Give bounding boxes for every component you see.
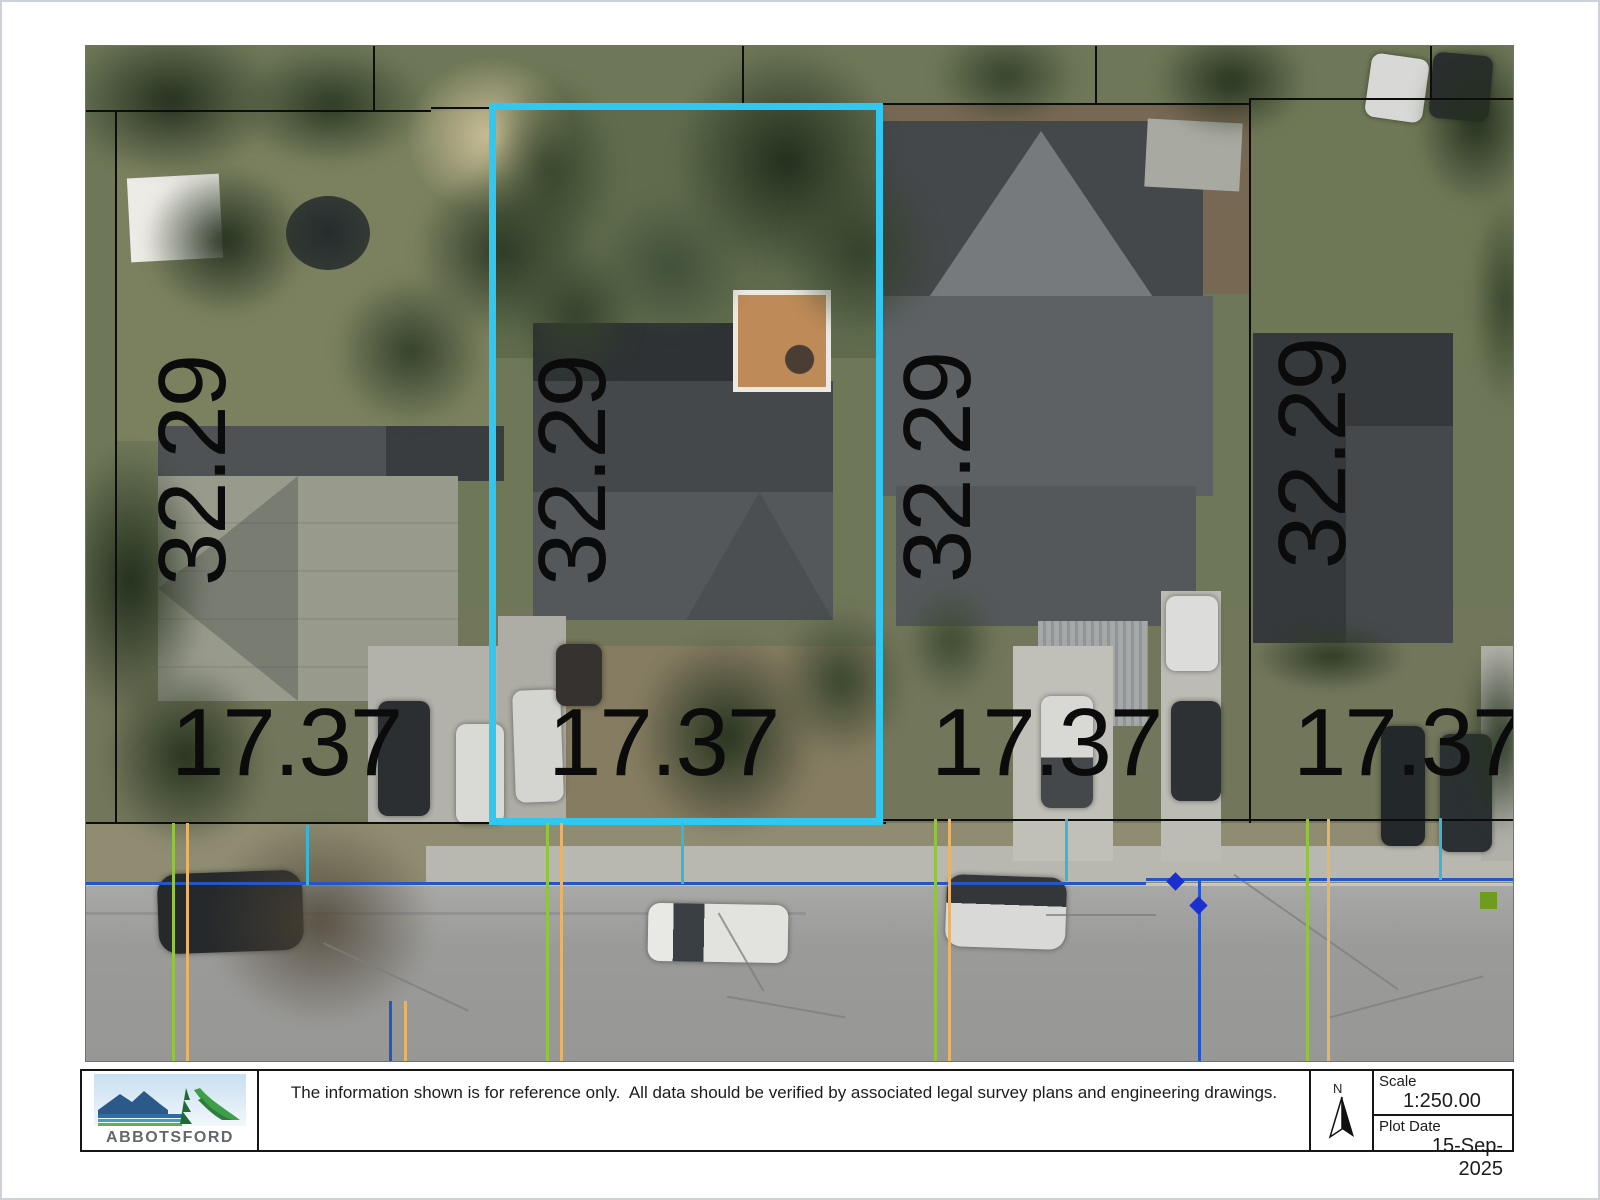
svg-text:N: N [1333, 1081, 1342, 1096]
utility-line-green [934, 819, 937, 1061]
dimension-label-depth-3: 32.29 [883, 308, 993, 628]
car [1166, 596, 1218, 671]
parcel-boundary [1250, 98, 1513, 100]
utility-line-orange [948, 819, 951, 1061]
utility-line-orange [404, 1001, 407, 1061]
utility-marker-square [1480, 892, 1497, 909]
logo-cell: ABBOTSFORD [82, 1071, 259, 1150]
parcel-boundary [879, 819, 1513, 821]
plot-date-row: Plot Date 15-Sep-2025 [1374, 1116, 1512, 1183]
north-arrow-cell: N [1311, 1071, 1374, 1150]
plot-sheet: 32.29 32.29 32.29 32.29 17.37 17.37 17.3… [0, 0, 1600, 1200]
scale-row: Scale 1:250.00 [1374, 1071, 1512, 1116]
parcel-boundary [431, 107, 494, 109]
abbotsford-logo: ABBOTSFORD [94, 1074, 246, 1147]
house-roof [386, 426, 504, 481]
north-arrow-icon: N [1320, 1079, 1364, 1143]
utility-line-orange [560, 823, 563, 1061]
parcel-boundary [373, 46, 375, 111]
aerial-map: 32.29 32.29 32.29 32.29 17.37 17.37 17.3… [85, 45, 1514, 1062]
svg-text:ABBOTSFORD: ABBOTSFORD [106, 1129, 234, 1146]
utility-line-green [172, 823, 175, 1061]
scale-label: Scale [1379, 1073, 1507, 1090]
title-block: ABBOTSFORD The information shown is for … [80, 1069, 1514, 1152]
car [945, 874, 1067, 950]
parcel-boundary [1095, 46, 1097, 104]
dimension-label-depth-4: 32.29 [1258, 294, 1368, 614]
scale-value: 1:250.00 [1379, 1090, 1507, 1113]
parcel-boundary [1430, 46, 1432, 99]
utility-line-teal [306, 825, 309, 885]
dimension-label-frontage-4: 17.37 [1293, 688, 1514, 798]
utility-line-green [546, 823, 549, 1061]
utility-line-orange [186, 823, 189, 1061]
plot-date-value: 15-Sep-2025 [1379, 1135, 1507, 1181]
utility-line-teal [1439, 818, 1442, 880]
utility-line-green [1306, 819, 1309, 1061]
utility-line-orange [1327, 819, 1330, 1061]
dimension-label-depth-2: 32.29 [518, 311, 628, 631]
parcel-boundary [115, 110, 117, 823]
utility-line-blue [86, 882, 1146, 885]
disclaimer-text: The information shown is for reference o… [259, 1071, 1311, 1150]
dimension-label-frontage-3: 17.37 [931, 688, 1251, 798]
parcel-boundary [86, 110, 431, 112]
scale-cell: Scale 1:250.00 Plot Date 15-Sep-2025 [1374, 1071, 1512, 1150]
dimension-label-frontage-1: 17.37 [171, 688, 491, 798]
utility-line-teal [1065, 819, 1068, 881]
plot-date-label: Plot Date [1379, 1118, 1507, 1135]
dimension-label-depth-1: 32.29 [138, 311, 248, 631]
utility-line-teal [681, 823, 684, 884]
parcel-boundary [879, 103, 1250, 105]
dimension-label-frontage-2: 17.37 [548, 688, 868, 798]
utility-line-blue [389, 1001, 392, 1061]
parcel-boundary [742, 46, 744, 108]
